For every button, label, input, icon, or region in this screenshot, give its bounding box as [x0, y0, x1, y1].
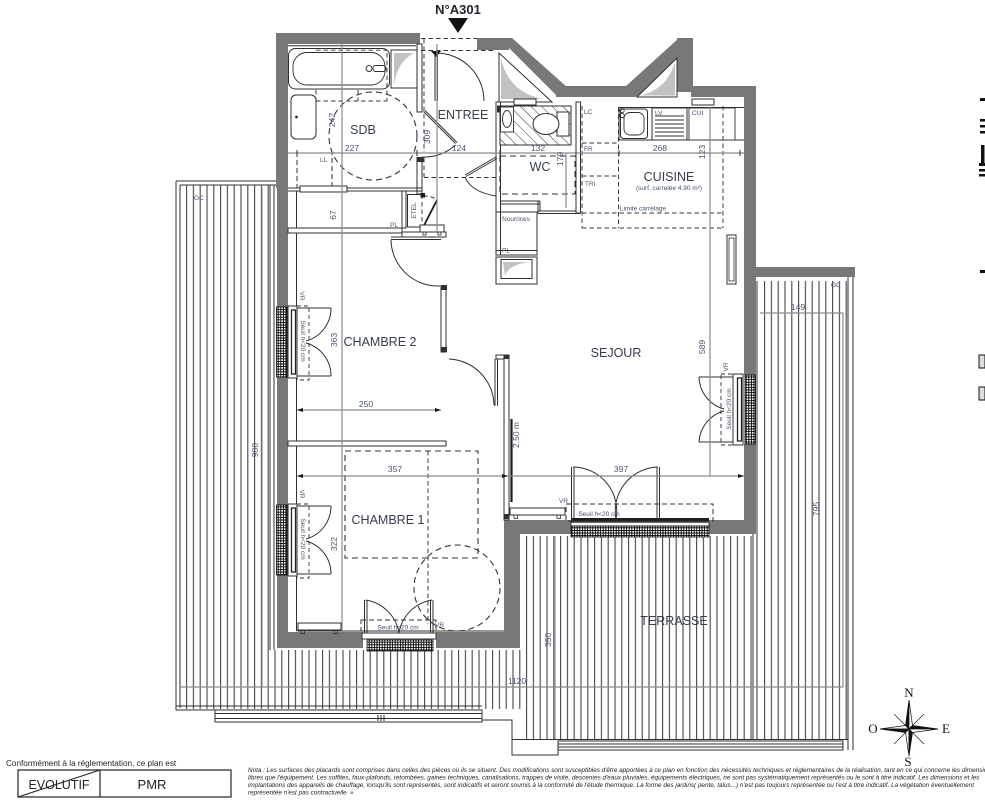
svg-text:Nota : Les surfaces des placar: Nota : Les surfaces des placards sont co… [248, 767, 985, 774]
svg-text:67: 67 [328, 210, 338, 220]
svg-text:ETEL: ETEL [411, 202, 418, 219]
svg-text:implantations des appareils de: implantations des appareils de chauffage… [248, 782, 974, 789]
svg-text:EVOLUTIF: EVOLUTIF [28, 778, 89, 792]
svg-text:589: 589 [697, 340, 707, 354]
svg-text:représentée n'est pas contract: représentée n'est pas contractuelle. » [248, 790, 354, 797]
svg-text:E: E [942, 721, 950, 736]
svg-text:357: 357 [388, 464, 402, 474]
svg-text:Seuil h<20 cm: Seuil h<20 cm [299, 518, 306, 559]
svg-text:VR: VR [559, 498, 568, 505]
svg-text:CUISINE: CUISINE [644, 170, 695, 184]
svg-text:124: 124 [452, 143, 466, 153]
svg-text:Seuil h<20 cm: Seuil h<20 cm [299, 320, 306, 361]
svg-text:Nourrices: Nourrices [502, 216, 531, 223]
svg-text:CHAMBRE 2: CHAMBRE 2 [344, 335, 417, 349]
svg-text:FR: FR [584, 146, 593, 153]
svg-text:WC: WC [530, 160, 551, 174]
svg-text:350: 350 [543, 633, 553, 647]
svg-text:TRI: TRI [585, 181, 596, 188]
svg-text:VR: VR [723, 362, 730, 371]
svg-text:PL: PL [390, 222, 398, 229]
svg-text:SEJOUR: SEJOUR [591, 346, 642, 360]
svg-text:1120: 1120 [508, 676, 527, 686]
svg-text:GC: GC [831, 282, 841, 289]
svg-text:LV: LV [655, 110, 663, 117]
svg-text:Seuil h<20 cm: Seuil h<20 cm [578, 511, 619, 518]
svg-text:N°A301: N°A301 [435, 2, 481, 17]
svg-text:123: 123 [697, 145, 707, 159]
svg-text:TERRASSE: TERRASSE [640, 614, 707, 628]
svg-text:322: 322 [329, 537, 339, 551]
svg-text:PL: PL [502, 248, 510, 255]
svg-text:795: 795 [811, 502, 821, 516]
svg-text:363: 363 [329, 333, 339, 347]
svg-text:VR: VR [298, 489, 305, 498]
svg-text:CHAMBRE 1: CHAMBRE 1 [352, 513, 425, 527]
svg-text:179: 179 [555, 152, 565, 166]
svg-text:Seuil h<20 cm: Seuil h<20 cm [377, 625, 418, 632]
svg-text:2.50 m: 2.50 m [511, 422, 521, 448]
svg-text:CUI: CUI [692, 110, 703, 117]
svg-text:PMR: PMR [138, 777, 167, 792]
svg-text:268: 268 [653, 143, 667, 153]
svg-text:libres que l'équipement. Les: libres que l'équipement. Les soffites, f… [248, 775, 980, 782]
svg-text:O: O [868, 721, 877, 736]
svg-text:SDB: SDB [350, 123, 376, 137]
svg-text:900: 900 [250, 443, 260, 457]
svg-text:N: N [904, 685, 914, 700]
svg-text:Conformément à la réglementati: Conformément à la réglementation, ce pla… [6, 759, 177, 768]
svg-text:242: 242 [327, 113, 337, 127]
svg-text:LL: LL [320, 157, 328, 164]
svg-text:Seuil h<20 cm: Seuil h<20 cm [726, 388, 733, 429]
svg-text:LC: LC [584, 109, 593, 116]
svg-text:GC: GC [194, 195, 204, 202]
svg-text:Limite carrelage: Limite carrelage [620, 206, 667, 213]
svg-text:250: 250 [359, 399, 373, 409]
svg-text:309: 309 [422, 130, 432, 144]
svg-text:227: 227 [345, 143, 359, 153]
svg-text:(surf. carrelée 4.90 m²): (surf. carrelée 4.90 m²) [636, 185, 702, 192]
svg-text:VR: VR [298, 291, 305, 300]
svg-text:397: 397 [614, 464, 628, 474]
svg-text:149: 149 [791, 302, 805, 312]
svg-text:132: 132 [531, 143, 545, 153]
svg-text:ENTREE: ENTREE [438, 108, 489, 122]
